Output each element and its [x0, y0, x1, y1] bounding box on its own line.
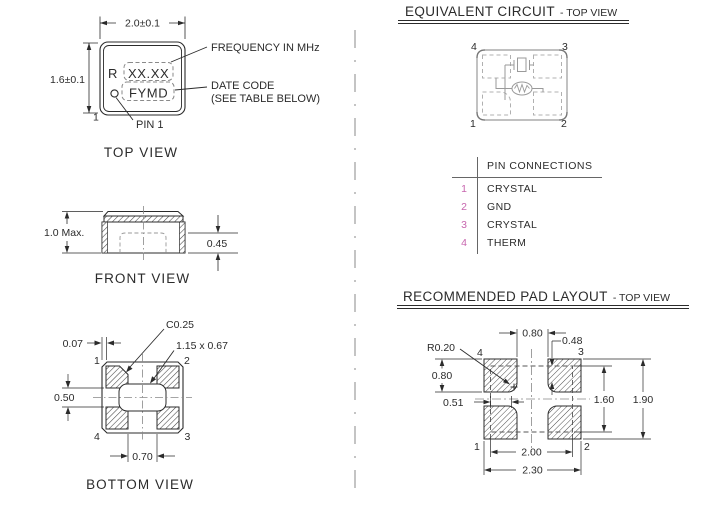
pin-connection: THERM — [487, 237, 526, 249]
bottom-pin-3: 3 — [185, 431, 191, 443]
circuit-pin-2: 2 — [561, 118, 567, 130]
circuit-pin-3: 3 — [562, 41, 568, 53]
callout-chamfer-label: C0.25 — [166, 319, 194, 331]
dim-overall-height-label: 1.90 — [633, 394, 654, 406]
equivalent-circuit-title-text: EQUIVALENT CIRCUIT — [405, 4, 555, 19]
top-view-drawing: R XX.XX FYMD 2.0±0.1 1.6±0.1 FREQUENCY I… — [0, 8, 335, 168]
dim-height-max-label: 1.0 Max. — [44, 227, 84, 239]
table-header: PIN CONNECTIONS — [487, 160, 593, 172]
circuit-pad-1 — [483, 92, 511, 115]
top-view-marking: R XX.XX FYMD — [108, 63, 174, 101]
layout-pin-3: 3 — [578, 346, 584, 358]
pin-connection: GND — [487, 201, 512, 213]
crystal-symbol — [505, 58, 534, 72]
right-castellation — [180, 222, 186, 253]
dim-body-height-label: 1.60 — [594, 394, 615, 406]
marking-datecode: FYMD — [129, 86, 168, 101]
pin-number: 4 — [455, 237, 473, 249]
datasheet-drawing-page: R XX.XX FYMD 2.0±0.1 1.6±0.1 FREQUENCY I… — [0, 0, 711, 508]
dim-pad-gap-horizontal-label: 0.70 — [132, 451, 153, 463]
pin-number: 1 — [455, 183, 473, 195]
dim-height-label: 1.6±0.1 — [50, 74, 85, 86]
layout-pad-1 — [484, 406, 517, 439]
pad-layout-title-suffix: - TOP VIEW — [613, 292, 670, 304]
dim-corner-radius-label: R0.20 — [427, 342, 455, 354]
layout-pin-1: 1 — [474, 441, 480, 453]
dim-pad-height-label: 0.80 — [432, 370, 453, 382]
circuit-pad-3 — [534, 55, 562, 78]
callout-datecode-line2: (SEE TABLE BELOW) — [211, 93, 320, 105]
bottom-pin-4: 4 — [94, 431, 100, 443]
equivalent-circuit-drawing: 4 3 1 2 — [460, 38, 580, 130]
pad-layout-title-text: RECOMMENDED PAD LAYOUT — [403, 289, 608, 304]
pad-layout-drawing: 0.80 0.48 R0.20 0.80 0.51 — [415, 320, 665, 482]
dim-terminal-label: 0.45 — [207, 238, 228, 250]
table-row: 1 CRYSTAL — [452, 183, 602, 201]
left-castellation — [102, 222, 108, 253]
pad-layout-title: RECOMMENDED PAD LAYOUT- TOP VIEW — [403, 288, 670, 306]
table-row: 2 GND — [452, 201, 602, 219]
bottom-pin-2: 2 — [184, 355, 190, 367]
circuit-pad-4 — [483, 55, 511, 78]
dim-notch-horizontal-label: 0.51 — [443, 397, 464, 409]
marking-prefix: R — [108, 66, 118, 81]
table-row: 4 THERM — [452, 237, 602, 255]
circuit-pin-1: 1 — [470, 118, 476, 130]
front-view-label: FRONT VIEW — [95, 271, 191, 286]
column-divider — [349, 25, 361, 505]
layout-pad-2 — [548, 406, 581, 439]
thermistor-symbol — [512, 82, 532, 95]
marking-frequency: XX.XX — [128, 66, 169, 81]
bottom-pin-1: 1 — [94, 355, 100, 367]
equivalent-circuit-title: EQUIVALENT CIRCUIT- TOP VIEW — [405, 3, 617, 21]
pin-connections-table: PIN CONNECTIONS 1 CRYSTAL 2 GND 3 CRYSTA… — [452, 157, 604, 255]
front-view-drawing: 1.0 Max. 0.45 FRONT VIEW — [40, 205, 240, 293]
top-view-pin1-number: 1 — [93, 112, 99, 124]
dim-pad-gap-vertical-label: 0.50 — [54, 392, 75, 404]
top-view-callout-leaders — [116, 47, 207, 120]
dim-edge-to-pad-label: 0.07 — [63, 338, 84, 350]
bottom-view-drawing: 0.07 0.50 0.70 C0.25 1.15 x 0.67 1 2 3 4… — [50, 312, 300, 495]
bottom-view-label: BOTTOM VIEW — [86, 477, 194, 492]
pin-number: 3 — [455, 219, 473, 231]
lid-seal-hatch — [104, 216, 183, 222]
circuit-pad-2 — [534, 92, 562, 115]
pad-layout-title-underline — [397, 305, 689, 309]
top-view-height-dimension — [83, 43, 98, 113]
callout-pin1: PIN 1 — [136, 119, 164, 131]
equivalent-circuit-title-underline — [398, 20, 629, 24]
callout-datecode-line1: DATE CODE — [211, 80, 274, 92]
pin1-marker-dot — [111, 90, 118, 97]
callout-cavity-label: 1.15 x 0.67 — [176, 340, 228, 352]
dim-body-width-label: 2.00 — [521, 447, 542, 459]
layout-pin-2: 2 — [584, 441, 590, 453]
equivalent-circuit-title-suffix: - TOP VIEW — [560, 7, 617, 19]
top-view-label: TOP VIEW — [104, 145, 178, 160]
dim-edge-to-pad — [87, 337, 121, 360]
pin-connection: CRYSTAL — [487, 219, 537, 231]
table-row: 3 CRYSTAL — [452, 219, 602, 237]
dim-pad-gap-top-label: 0.80 — [522, 328, 543, 340]
circuit-pin-4: 4 — [471, 41, 477, 53]
dim-width-label: 2.0±0.1 — [125, 18, 160, 30]
pin-connection: CRYSTAL — [487, 183, 537, 195]
table-header-rule — [452, 177, 602, 178]
layout-pin-4: 4 — [477, 347, 483, 359]
dim-overall-width-label: 2.30 — [522, 465, 543, 477]
pin-number: 2 — [455, 201, 473, 213]
callout-frequency: FREQUENCY IN MHz — [211, 42, 320, 54]
